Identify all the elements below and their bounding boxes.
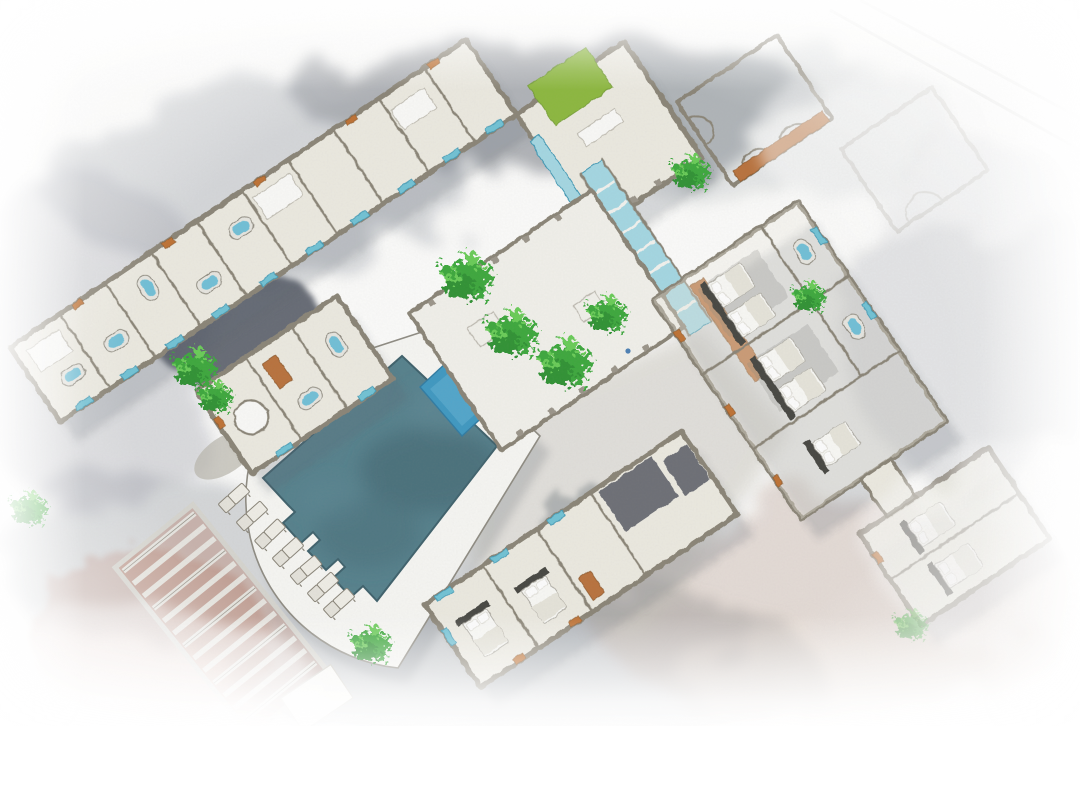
- rendering-canvas: [0, 0, 1080, 800]
- white-vignette: [0, 0, 1080, 800]
- watercolor-aerial-rendering: [0, 0, 1080, 800]
